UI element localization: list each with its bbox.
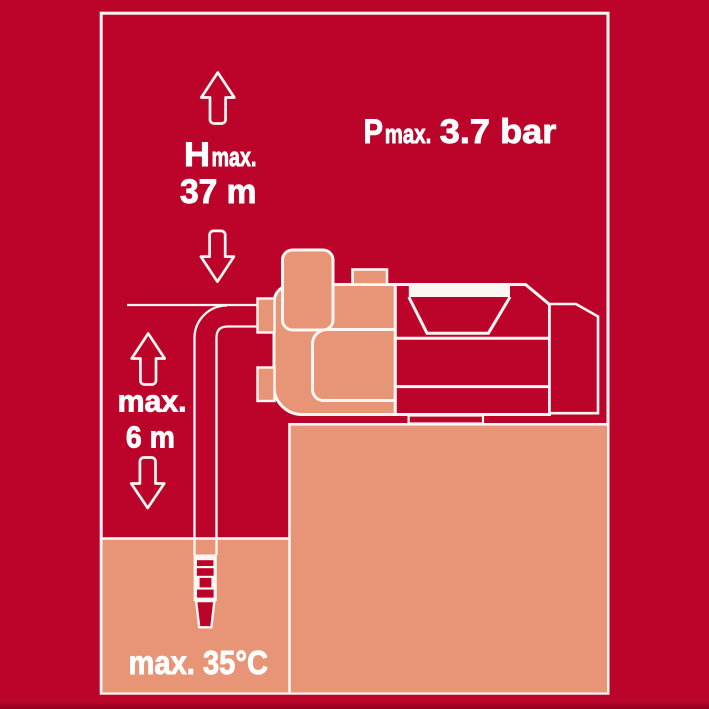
svg-text:H: H [184, 136, 210, 174]
svg-text:6 m: 6 m [126, 419, 175, 454]
svg-text:max. 35°C: max. 35°C [129, 645, 269, 682]
svg-text:3.7 bar: 3.7 bar [440, 113, 557, 151]
svg-text:P: P [364, 113, 384, 151]
svg-text:37 m: 37 m [180, 173, 257, 211]
svg-text:max.: max. [385, 119, 432, 149]
svg-text:max.: max. [118, 384, 187, 419]
svg-text:max.: max. [212, 142, 257, 172]
